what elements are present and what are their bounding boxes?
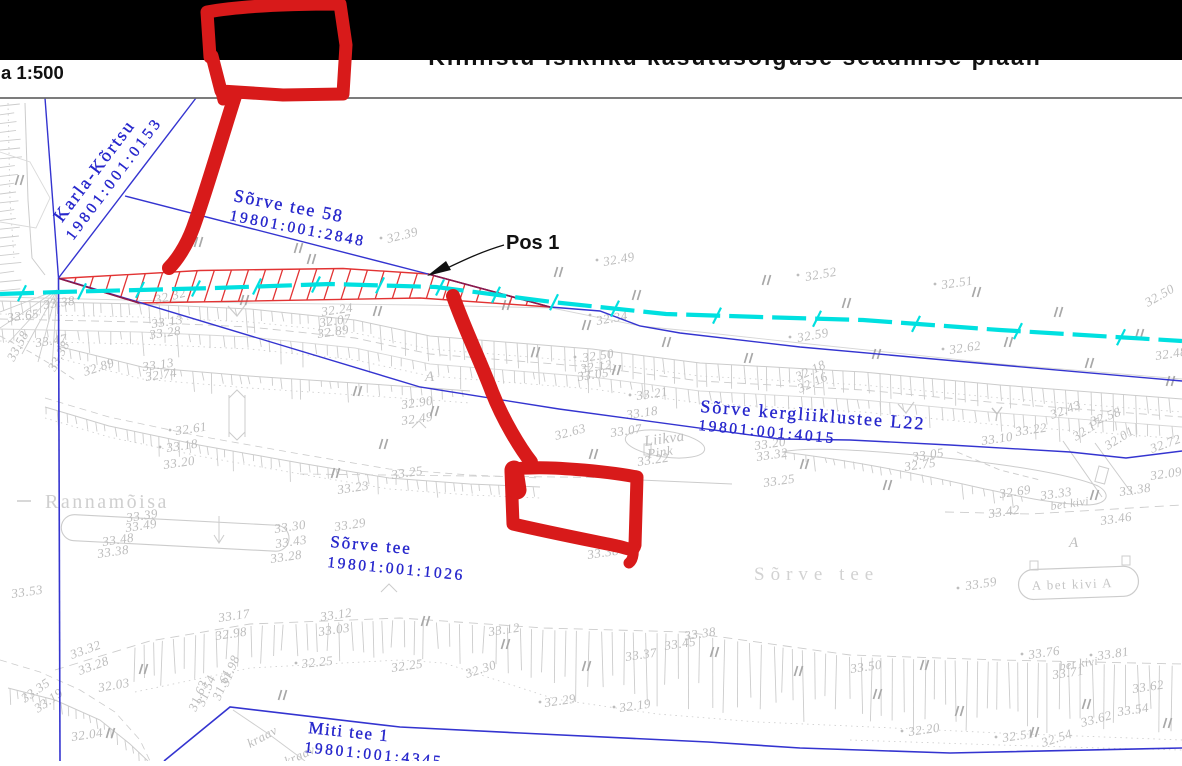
svg-text:a 1:500: a 1:500 xyxy=(1,62,64,83)
svg-text:Rannamõisa: Rannamõisa xyxy=(45,491,169,513)
svg-text:A bet kivi A: A bet kivi A xyxy=(1032,575,1114,593)
svg-text:A: A xyxy=(1068,535,1079,551)
svg-text:A: A xyxy=(424,369,435,385)
svg-text:Sõrve tee: Sõrve tee xyxy=(754,564,879,585)
svg-text:Pos 1: Pos 1 xyxy=(506,232,559,254)
